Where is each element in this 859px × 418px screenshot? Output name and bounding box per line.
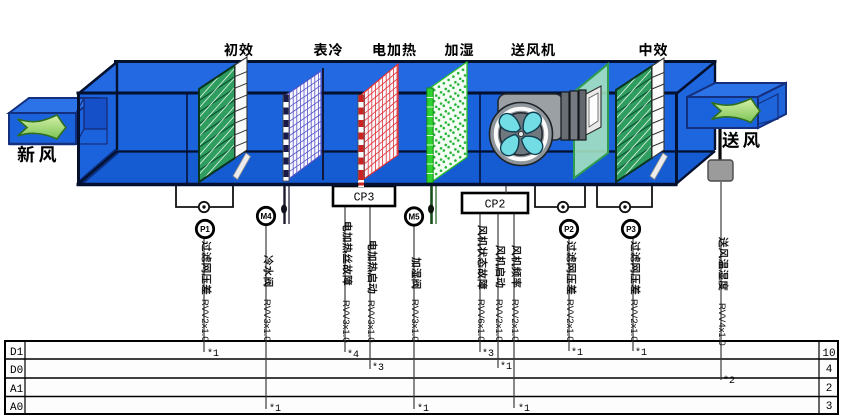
svg-text:10: 10 <box>822 348 835 360</box>
svg-text:CP3: CP3 <box>354 192 375 205</box>
svg-text:3: 3 <box>826 401 833 413</box>
svg-text:CP2: CP2 <box>485 199 506 212</box>
svg-text:*2: *2 <box>723 375 735 387</box>
svg-text:RVV2x1.0: RVV2x1.0 <box>564 299 575 342</box>
svg-text:*4: *4 <box>347 349 359 361</box>
svg-text:*1: *1 <box>269 403 281 415</box>
svg-text:D0: D0 <box>10 365 23 377</box>
svg-text:A1: A1 <box>10 384 24 396</box>
svg-text:RVV2x1.0: RVV2x1.0 <box>199 299 210 342</box>
svg-text:*1: *1 <box>635 347 647 359</box>
svg-text:RVV3x1.0: RVV3x1.0 <box>365 300 376 343</box>
svg-text:RVV3x1.0: RVV3x1.0 <box>340 300 351 343</box>
svg-text:*3: *3 <box>482 348 494 360</box>
svg-text:*3: *3 <box>372 362 384 374</box>
svg-text:RVV4x1.0: RVV4x1.0 <box>716 303 727 346</box>
svg-text:2: 2 <box>826 383 833 395</box>
svg-text:*1: *1 <box>417 403 429 415</box>
svg-text:*1: *1 <box>571 347 583 359</box>
svg-text:D1: D1 <box>10 347 24 359</box>
svg-text:P3: P3 <box>626 225 636 234</box>
svg-text:RVV2x1.0: RVV2x1.0 <box>509 299 520 342</box>
svg-text:*1: *1 <box>500 361 512 373</box>
svg-text:*1: *1 <box>518 403 530 415</box>
svg-text:RVV2x1.0: RVV2x1.0 <box>628 299 639 342</box>
svg-text:RVV6x1.0: RVV6x1.0 <box>475 299 486 342</box>
svg-text:P1: P1 <box>200 225 210 234</box>
svg-text:4: 4 <box>826 364 833 376</box>
svg-text:RVV2x1.0: RVV2x1.0 <box>493 299 504 342</box>
svg-text:M5: M5 <box>408 212 420 221</box>
svg-text:A0: A0 <box>10 402 23 414</box>
svg-text:P2: P2 <box>564 225 574 234</box>
svg-text:RVV3x1.0: RVV3x1.0 <box>409 299 420 342</box>
svg-text:M4: M4 <box>260 212 272 221</box>
svg-text:RVV3x1.0: RVV3x1.0 <box>261 299 272 342</box>
svg-text:*1: *1 <box>207 348 219 360</box>
